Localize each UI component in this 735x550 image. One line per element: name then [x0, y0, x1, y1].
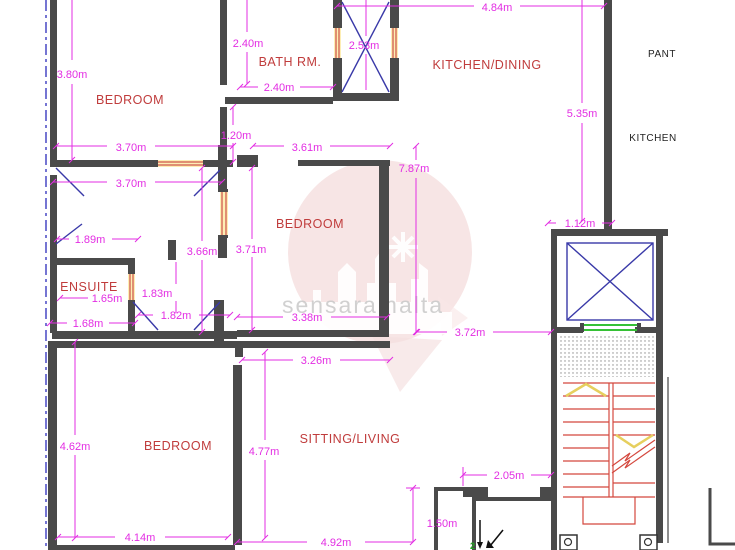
dim-3-71m: 3.71m	[236, 244, 267, 256]
window-shaft-right	[391, 25, 398, 61]
dim-1-12m: 1.12m	[565, 218, 596, 230]
window-middle-bedroom	[220, 189, 228, 238]
floor-plan-canvas: sensaramalta	[0, 0, 735, 550]
dim-5-35m: 5.35m	[567, 108, 598, 120]
dim-3-80m: 3.80m	[57, 69, 88, 81]
elevator-cross-icon	[567, 243, 653, 320]
staircase	[563, 383, 655, 524]
dim-4-14m: 4.14m	[125, 532, 156, 544]
door-ensuite	[128, 271, 135, 303]
dim-1-68m: 1.68m	[73, 318, 104, 330]
dim-3-70m-lower: 3.70m	[116, 178, 147, 190]
dim-1-83m: 1.83m	[142, 288, 173, 300]
dim-4-77m: 4.77m	[249, 446, 280, 458]
window-shaft-left	[334, 25, 341, 61]
entrance-marker: 2	[470, 541, 475, 550]
dim-4-92m: 4.92m	[321, 537, 352, 549]
dim-3-72m: 3.72m	[455, 327, 486, 339]
room-label-ensuite: ENSUITE	[60, 280, 118, 294]
room-label-sitting-living: SITTING/LIVING	[300, 432, 401, 446]
room-label-bedroom-top-left: BEDROOM	[96, 93, 164, 107]
dim-4-84m: 4.84m	[482, 2, 513, 14]
room-label-bedroom-bottom: BEDROOM	[144, 439, 212, 453]
dim-3-26m: 3.26m	[301, 355, 332, 367]
dim-1-65m: 1.65m	[92, 293, 123, 305]
room-label-bedroom-middle: BEDROOM	[276, 217, 344, 231]
entrance-arrows	[477, 520, 503, 549]
room-label-kitchen-dining: KITCHEN/DINING	[432, 58, 541, 72]
dim-1-20m: 1.20m	[221, 130, 252, 142]
adjacent-unit-wall-corner	[710, 488, 735, 544]
dim-4-62m: 4.62m	[60, 441, 91, 453]
room-label-pantry-adjacent: PANT	[648, 49, 676, 60]
elevator-door	[580, 323, 641, 332]
dim-3-61m: 3.61m	[292, 142, 323, 154]
dim-2-05m: 2.05m	[494, 470, 525, 482]
dim-2-40m-v: 2.40m	[233, 38, 264, 50]
dim-2-40m-h: 2.40m	[264, 82, 295, 94]
window-top-bedroom	[155, 160, 206, 167]
dim-3-38m: 3.38m	[292, 312, 323, 324]
stair-break-line	[612, 447, 655, 473]
dim-1-50m: 1.50m	[427, 518, 458, 530]
room-label-bath-room: BATH RM.	[259, 55, 322, 69]
structural-columns	[560, 535, 657, 550]
dim-2-53m: 2.53m	[349, 40, 380, 52]
dim-3-70m-upper: 3.70m	[116, 142, 147, 154]
room-label-kitchen-adjacent: KITCHEN	[629, 133, 676, 144]
dim-1-82m: 1.82m	[161, 310, 192, 322]
dim-1-89m: 1.89m	[75, 234, 106, 246]
dim-3-66m: 3.66m	[187, 246, 218, 258]
landing-hatch	[558, 336, 654, 377]
dim-7-87m: 7.87m	[399, 163, 430, 175]
